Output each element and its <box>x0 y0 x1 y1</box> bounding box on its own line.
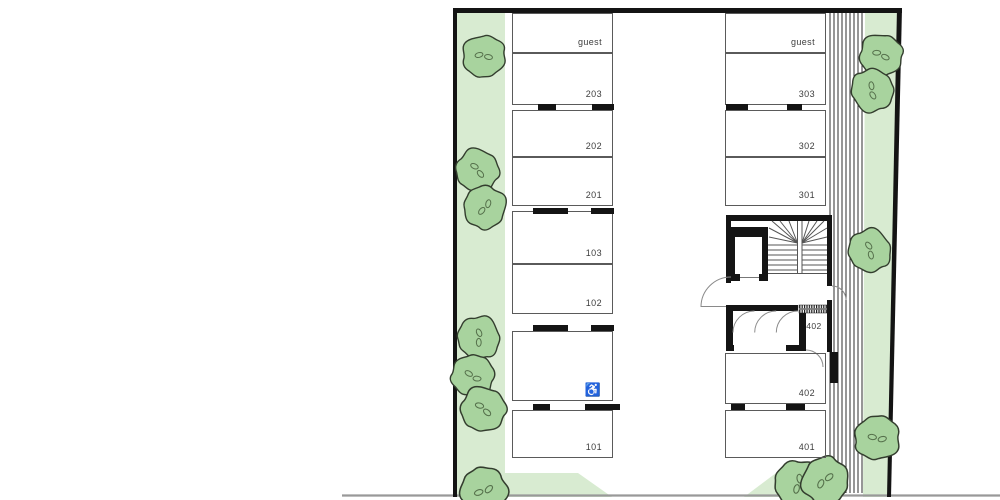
parking-space-guest-right: guest <box>725 13 826 53</box>
parking-space-101: 101 <box>512 410 613 458</box>
stair-treads <box>768 221 827 274</box>
space-label: guest <box>791 37 815 47</box>
column-tick <box>591 325 614 331</box>
column-tick <box>731 404 745 410</box>
parking-space-303: 303 <box>725 53 826 105</box>
space-label: 401 <box>799 442 815 452</box>
parking-space-202: 202 <box>512 110 613 157</box>
space-label: 102 <box>586 298 602 308</box>
column-tick <box>726 104 748 110</box>
parking-space-102: 102 <box>512 264 613 314</box>
column-tick <box>591 208 614 214</box>
column-tick <box>787 104 802 110</box>
space-label: 101 <box>586 442 602 452</box>
floor-plan: guest 203 202 201 103 102 ♿ 101 guest 30… <box>0 0 1000 500</box>
space-label: 303 <box>799 89 815 99</box>
elevator-cab <box>735 237 762 274</box>
space-label: 301 <box>799 190 815 200</box>
parking-space-402: 402 <box>725 353 826 404</box>
parking-space-301: 301 <box>725 157 826 206</box>
column-tick <box>592 104 614 110</box>
column-tick <box>786 404 805 410</box>
column-tick <box>533 208 568 214</box>
tree-icon <box>463 35 505 77</box>
core-top-wall <box>726 215 832 221</box>
space-label: 203 <box>586 89 602 99</box>
column-tick <box>538 104 556 110</box>
parking-space-guest-left: guest <box>512 13 613 53</box>
column-tick <box>533 404 550 410</box>
tree-icon <box>855 416 899 460</box>
hatched-wall-block <box>799 305 827 313</box>
wheelchair-icon: ♿ <box>585 383 601 396</box>
column-tick <box>533 325 568 331</box>
space-label: 201 <box>586 190 602 200</box>
parking-space-201: 201 <box>512 157 613 206</box>
space-label: guest <box>578 37 602 47</box>
space-label: 302 <box>799 141 815 151</box>
pier-block <box>830 352 838 383</box>
space-label: 202 <box>586 141 602 151</box>
plan-drawing <box>0 0 1000 500</box>
parking-space-203: 203 <box>512 53 613 105</box>
column-tick <box>585 404 620 410</box>
space-label: 402 <box>799 388 815 398</box>
storage-room-label: 402 <box>799 321 829 331</box>
core-right-wall <box>827 215 832 352</box>
space-label: 103 <box>586 248 602 258</box>
parking-space-401: 401 <box>725 410 826 458</box>
parking-space-103: 103 <box>512 211 613 264</box>
parking-space-accessible: ♿ <box>512 331 613 401</box>
parking-space-302: 302 <box>725 110 826 157</box>
